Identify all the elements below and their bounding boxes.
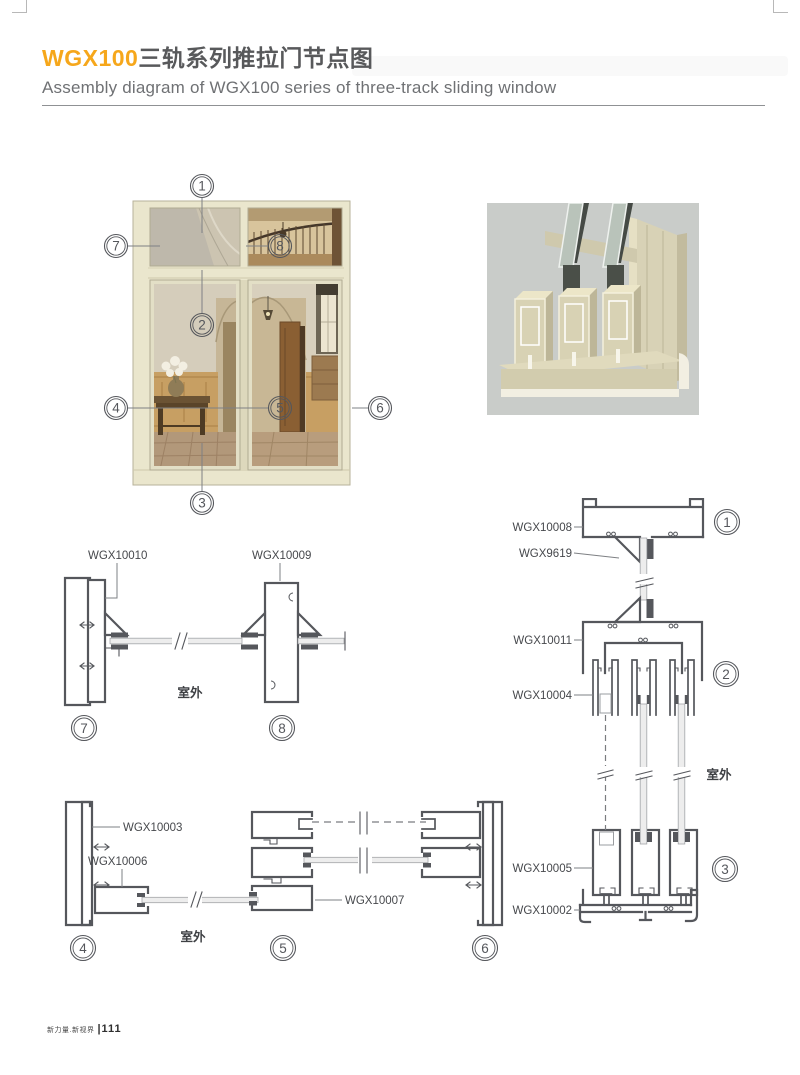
- page-title: WGX100三轨系列推拉门节点图: [42, 44, 765, 72]
- callout-3-detail: 3: [713, 857, 738, 882]
- callout-1-number: 1: [198, 179, 206, 194]
- label-wgx10009: WGX10009: [252, 550, 311, 562]
- label-wgx10010: WGX10010: [88, 550, 147, 562]
- callout-8-number: 8: [278, 721, 286, 736]
- callout-7-number: 7: [112, 239, 120, 254]
- callout-6: 6: [369, 397, 392, 420]
- transom-right-pane: [248, 208, 342, 266]
- gap-arrow: [94, 844, 109, 850]
- label-wgx10008: WGX10008: [513, 522, 572, 534]
- callout-2-number: 2: [722, 667, 730, 682]
- vertical-section: WGX10008 WGX9619 WGX10011 WGX10004 WGX10…: [495, 498, 750, 943]
- detail-7-8-svg: WGX10010 WGX10009 室外 7 8: [55, 535, 405, 750]
- glass-run: [110, 632, 242, 650]
- horizontal-section-svg: WGX10003 WGX10006 WGX10007 室外 4 5 6: [50, 795, 515, 970]
- outdoor-label: 室外: [706, 767, 732, 782]
- screw-port: [608, 624, 678, 642]
- callout-6-number: 6: [376, 401, 384, 416]
- screw-port: [612, 907, 673, 911]
- label-wgx10003: WGX10003: [123, 822, 182, 834]
- callout-7-detail: 7: [72, 716, 97, 741]
- outdoor-label: 室外: [177, 685, 203, 700]
- label-wgx10007: WGX10007: [345, 895, 404, 907]
- callout-3-number: 3: [198, 496, 206, 511]
- footer-brand: 新力量.新视界: [47, 1025, 94, 1035]
- callout-4-number: 4: [79, 941, 87, 956]
- callout-1: 1: [191, 175, 214, 198]
- page-subtitle: Assembly diagram of WGX100 series of thr…: [42, 78, 765, 98]
- title-model-code: WGX100: [42, 45, 138, 71]
- callout-5-number: 5: [279, 941, 287, 956]
- title-chinese: 三轨系列推拉门节点图: [138, 45, 373, 71]
- callout-7-number: 7: [80, 721, 88, 736]
- callout-2-detail: 2: [714, 662, 739, 687]
- label-wgx10002: WGX10002: [513, 905, 572, 917]
- glass-columns: [598, 695, 690, 844]
- footer-page-number: 111: [102, 1023, 122, 1035]
- label-wgx10006: WGX10006: [88, 856, 147, 868]
- header-divider: [42, 105, 765, 106]
- lower-left-pane: [150, 280, 240, 472]
- footer-separator: |: [97, 1023, 100, 1035]
- callout-3-number: 3: [721, 862, 729, 877]
- catalog-page: WGX100三轨系列推拉门节点图 Assembly diagram of WGX…: [0, 0, 800, 1075]
- callout-6-detail: 6: [473, 936, 498, 961]
- label-wgx10005: WGX10005: [513, 863, 572, 875]
- profile-wgx10009-drawing: [241, 583, 345, 702]
- crop-mark-top-left: [12, 0, 27, 13]
- callout-4-number: 4: [112, 401, 120, 416]
- horizontal-section: WGX10003 WGX10006 WGX10007 室外 4 5 6: [50, 795, 515, 970]
- outdoor-label: 室外: [180, 929, 206, 944]
- label-wgx10011: WGX10011: [513, 635, 572, 647]
- profile-wgx10008-drawing: [583, 499, 703, 537]
- window-photo-svg: 1 7 8 2 4 5 6 3: [96, 170, 396, 520]
- callout-6-number: 6: [481, 941, 489, 956]
- profile-3d-render: [487, 203, 699, 415]
- window-photo-figure: 1 7 8 2 4 5 6 3: [96, 170, 396, 520]
- callout-4-detail: 4: [71, 936, 96, 961]
- crop-mark-top-right: [773, 0, 788, 13]
- lower-right-pane: [248, 280, 342, 472]
- detail-7-8-section: WGX10010 WGX10009 室外 7 8: [55, 535, 405, 750]
- callout-3: 3: [191, 492, 214, 515]
- callout-1-detail: 1: [715, 510, 740, 535]
- screw-port: [607, 532, 678, 536]
- transom-left-pane: [150, 208, 240, 266]
- callout-8-number: 8: [276, 239, 284, 254]
- vertical-section-svg: WGX10008 WGX9619 WGX10011 WGX10004 WGX10…: [495, 498, 750, 943]
- callout-7: 7: [105, 235, 128, 258]
- gap-arrow: [466, 882, 481, 888]
- callout-4: 4: [105, 397, 128, 420]
- callout-5-number: 5: [276, 401, 284, 416]
- page-footer: 新力量.新视界 | 111: [47, 1023, 122, 1035]
- callout-8-detail: 8: [270, 716, 295, 741]
- callout-1-number: 1: [723, 515, 731, 530]
- profile-3d-svg: [487, 203, 699, 415]
- label-wgx10004: WGX10004: [513, 690, 573, 702]
- label-wgx9619: WGX9619: [519, 548, 572, 560]
- callout-5-detail: 5: [271, 936, 296, 961]
- callout-2-number: 2: [198, 318, 206, 333]
- profile-wgx9619-drawing: [615, 537, 654, 622]
- page-header: WGX100三轨系列推拉门节点图 Assembly diagram of WGX…: [42, 44, 765, 106]
